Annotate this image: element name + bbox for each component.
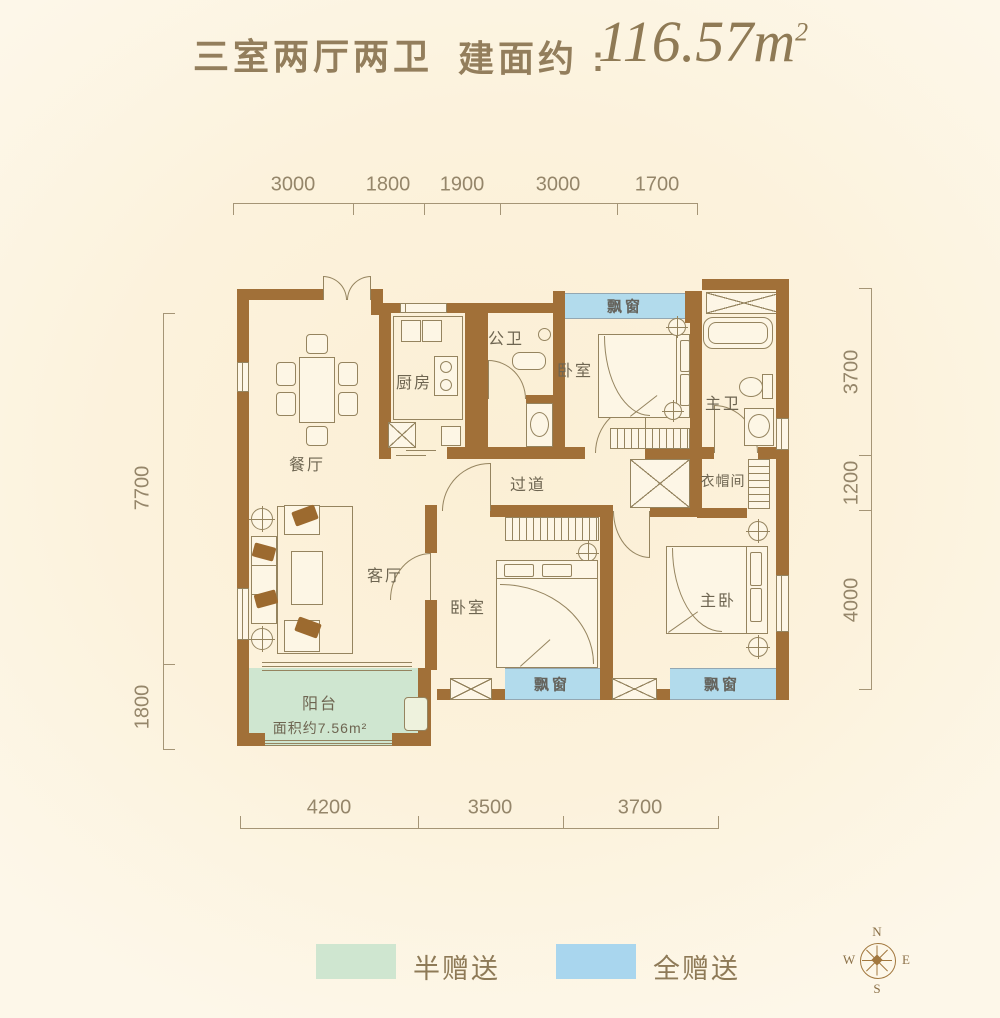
compass-north: N — [872, 924, 881, 940]
entry-door-arc-left — [323, 276, 347, 300]
dim-value: 1200 — [841, 461, 864, 506]
room-label-public-bath: 公卫 — [488, 325, 524, 349]
stove-burner — [440, 361, 452, 373]
kitchen-sink — [422, 320, 442, 342]
nightstand — [664, 402, 682, 420]
wall — [237, 289, 323, 300]
compass-south: S — [873, 981, 880, 997]
wall — [237, 289, 249, 362]
sofa-cushion-line — [251, 565, 277, 566]
dim-tick — [859, 689, 872, 690]
bed-pillow — [680, 340, 690, 372]
public-bath-tub — [512, 352, 546, 370]
area-unit: m — [753, 9, 795, 74]
wall — [383, 303, 400, 313]
room-label-master-bath: 主卫 — [705, 390, 741, 414]
ac-platform-bottom-2 — [612, 678, 657, 700]
wall-duct-shaft — [465, 303, 488, 459]
dim-tick — [859, 510, 872, 511]
dim-tick — [163, 313, 175, 314]
dim-value: 4200 — [307, 797, 352, 820]
master-bedroom-door-leaf — [649, 511, 650, 558]
wardrobe — [610, 428, 690, 449]
wash-basin — [748, 414, 770, 438]
wall — [526, 395, 553, 403]
room-label-balcony: 阳台 — [302, 690, 338, 714]
balcony-sliding-door — [262, 662, 412, 671]
dim-tick — [418, 816, 419, 829]
public-bath-door-leaf — [488, 360, 489, 399]
room-label-balcony-area: 面积约7.56m² — [273, 718, 368, 738]
bay-window-label: 飘窗 — [534, 674, 570, 695]
wall — [553, 313, 565, 459]
dim-tick — [240, 816, 241, 829]
bay-window-label: 飘窗 — [607, 296, 643, 317]
bathtub-inner — [708, 322, 768, 344]
window-right-1 — [776, 418, 789, 450]
dim-tick — [233, 203, 234, 215]
bed-pillow — [750, 588, 762, 622]
bed-headboard — [746, 546, 747, 634]
nightstand — [668, 318, 686, 336]
wall — [776, 279, 789, 418]
bed-headboard — [496, 578, 598, 579]
dining-chair — [338, 362, 358, 386]
room-label-master-bedroom: 主卧 — [700, 587, 736, 611]
dim-tick — [859, 455, 872, 456]
dim-value: 7700 — [132, 466, 155, 511]
dim-value: 3700 — [618, 797, 663, 820]
wall — [392, 733, 418, 746]
dim-value: 1700 — [635, 174, 680, 197]
wall — [237, 640, 249, 746]
kitchen-slide-door — [406, 450, 436, 451]
dining-table — [299, 357, 335, 423]
balcony-railing — [265, 740, 392, 746]
bay-window-label: 飘窗 — [704, 674, 740, 695]
wall — [237, 392, 249, 588]
compass-east: E — [902, 952, 910, 968]
dining-chair — [306, 334, 328, 354]
bed-pillow — [680, 374, 690, 406]
bedroom-bottom-door-arc — [442, 463, 490, 511]
kitchen-slide-door — [396, 455, 426, 456]
area-number: 116.57 — [598, 9, 753, 74]
legend-label-half-gift: 半赠送 — [413, 947, 500, 986]
bed-pillow — [542, 564, 572, 577]
room-label-bedroom-top: 卧室 — [557, 357, 593, 381]
wardrobe — [505, 517, 599, 541]
master-bedroom-door-arc — [613, 511, 650, 558]
wall — [379, 313, 391, 417]
compass-west: W — [843, 952, 855, 968]
toilet-bowl — [739, 377, 763, 397]
bed-pillow — [504, 564, 534, 577]
dim-line — [163, 313, 164, 750]
bed-pillow — [750, 552, 762, 586]
wall — [490, 505, 600, 517]
entry-door-arc-right — [347, 276, 371, 300]
window-left-1 — [237, 362, 249, 392]
bedroom-bottom-door-leaf — [490, 463, 491, 511]
wall — [425, 505, 437, 553]
ac-platform-bottom-1 — [450, 678, 492, 700]
room-label-dining: 餐厅 — [289, 451, 325, 475]
corridor-closet — [630, 459, 690, 508]
nightstand — [748, 637, 768, 657]
kitchen-cabinet — [441, 426, 461, 446]
dim-value: 3000 — [271, 174, 316, 197]
toilet-tank — [762, 374, 773, 399]
wall — [371, 289, 383, 315]
dim-value: 3500 — [468, 797, 513, 820]
dim-tick — [697, 203, 698, 215]
dim-tick — [718, 816, 719, 829]
dim-tick — [617, 203, 618, 215]
page-title-area-prefix: 建面约 : — [458, 30, 608, 82]
dim-value: 3000 — [536, 174, 581, 197]
legend-label-full-gift: 全赠送 — [653, 947, 740, 986]
area-exponent: 2 — [795, 18, 808, 47]
nightstand — [748, 521, 768, 541]
dim-value: 4000 — [841, 578, 864, 623]
wall — [488, 303, 553, 313]
dim-tick — [563, 816, 564, 829]
wall — [776, 450, 789, 575]
dim-line — [240, 828, 718, 829]
kitchen-sink — [401, 320, 421, 342]
window-left-2 — [237, 588, 249, 640]
cloakroom-wardrobe — [748, 459, 770, 509]
wall — [425, 600, 437, 670]
wall — [776, 632, 789, 700]
side-table — [251, 628, 273, 650]
dining-chair — [306, 426, 328, 446]
water-heater — [404, 697, 428, 731]
legend-swatch-full-gift — [556, 944, 636, 979]
wash-basin — [530, 412, 549, 437]
dim-tick — [353, 203, 354, 215]
legend-swatch-half-gift — [316, 944, 396, 979]
room-label-kitchen: 厨房 — [396, 369, 432, 393]
fridge — [388, 422, 416, 448]
dining-chair — [276, 362, 296, 386]
wall — [758, 447, 776, 459]
page-title-area-value: 116.57m2 — [598, 8, 808, 75]
dim-line — [871, 288, 872, 690]
dim-tick — [500, 203, 501, 215]
coffee-table — [291, 551, 323, 605]
dim-line — [233, 203, 697, 204]
dim-value: 1900 — [440, 174, 485, 197]
dim-tick — [163, 664, 175, 665]
dim-tick — [163, 749, 175, 750]
room-label-cloakroom: 衣帽间 — [701, 471, 746, 491]
room-label-bedroom-bottom: 卧室 — [450, 594, 486, 618]
room-label-corridor: 过道 — [510, 471, 546, 495]
side-table — [251, 508, 273, 530]
dim-tick — [424, 203, 425, 215]
wall — [237, 733, 265, 746]
wall — [447, 303, 465, 313]
room-label-living: 客厅 — [367, 562, 403, 586]
dim-tick — [859, 288, 872, 289]
dim-value: 1800 — [132, 685, 155, 730]
ac-platform-top — [706, 292, 782, 314]
dining-chair — [338, 392, 358, 416]
dim-value: 1800 — [366, 174, 411, 197]
dining-chair — [276, 392, 296, 416]
wall — [697, 508, 747, 518]
kitchen-window — [400, 303, 447, 313]
page-title-layout-type: 三室两厅两卫 — [193, 28, 433, 80]
dim-value: 3700 — [841, 350, 864, 395]
wall — [690, 316, 702, 459]
window-right-2 — [776, 575, 789, 632]
entry-door-leaf-left — [323, 276, 324, 300]
stove-burner — [440, 379, 452, 391]
shower-head — [538, 328, 551, 341]
living-side-door-leaf — [430, 553, 431, 600]
wall — [600, 505, 613, 690]
